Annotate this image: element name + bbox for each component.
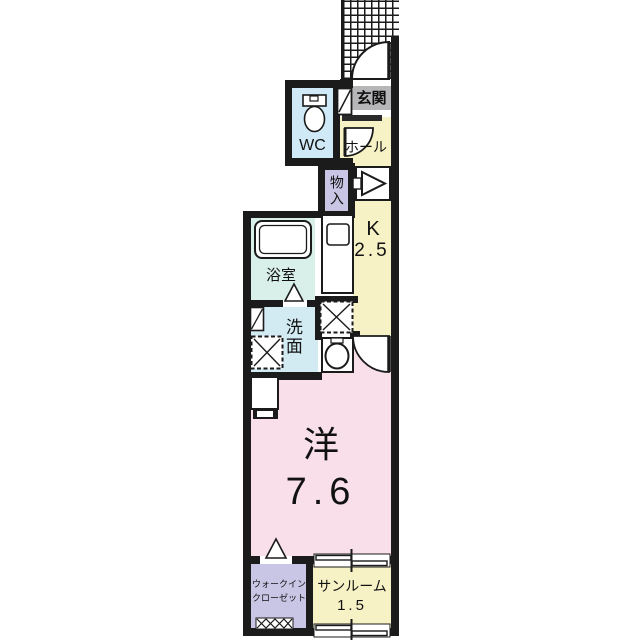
closet-folding-door-icon [266,539,286,558]
kitchen-size-label: 2.5 [350,240,394,262]
hall-label: ホール [341,138,391,156]
wash-basin-icon [326,344,349,369]
wall-stub-inner [257,411,273,417]
bathtub-icon [255,221,311,258]
bath-label: 浴室 [255,266,307,286]
washroom-label: 洗面 [281,310,303,364]
kitchen-sink-icon [327,224,349,245]
entrance-door-swing-icon [352,42,389,79]
sliding-window-pane [316,556,351,561]
toilet-tank-lid [310,96,318,101]
toilet-bowl-icon [305,107,325,132]
fixtures-overlay [0,0,640,640]
basin-tap [331,338,343,343]
refrigerator-notch [353,178,361,189]
western-room-label: 洋 [251,424,391,466]
sliding-window-pane [316,626,351,631]
room-door-swing-icon [353,336,389,372]
wc-label: WC [292,136,333,156]
closet-label-line1: ウォークイン [251,578,307,591]
storage-label: 物入 [325,172,348,210]
pipe-space-box [251,377,278,409]
sliding-window-pane [352,561,387,566]
bath-folding-door-icon [285,284,303,301]
genkan-step-bar [342,115,382,121]
closet-label-line2: クローゼット [251,592,307,605]
floorplan-canvas: 玄関 WC ホール 物入 K 2.5 浴室 洗面 洋 7.6 ウォークイン クロ… [0,0,640,640]
sliding-window-pane [352,631,387,636]
sunroom-label: サンルーム [313,577,391,595]
western-room-size-label: 7.6 [251,470,391,516]
genkan-label: 玄関 [352,89,391,109]
sunroom-size-label: 1.5 [313,597,391,615]
kitchen-label: K [355,218,391,240]
